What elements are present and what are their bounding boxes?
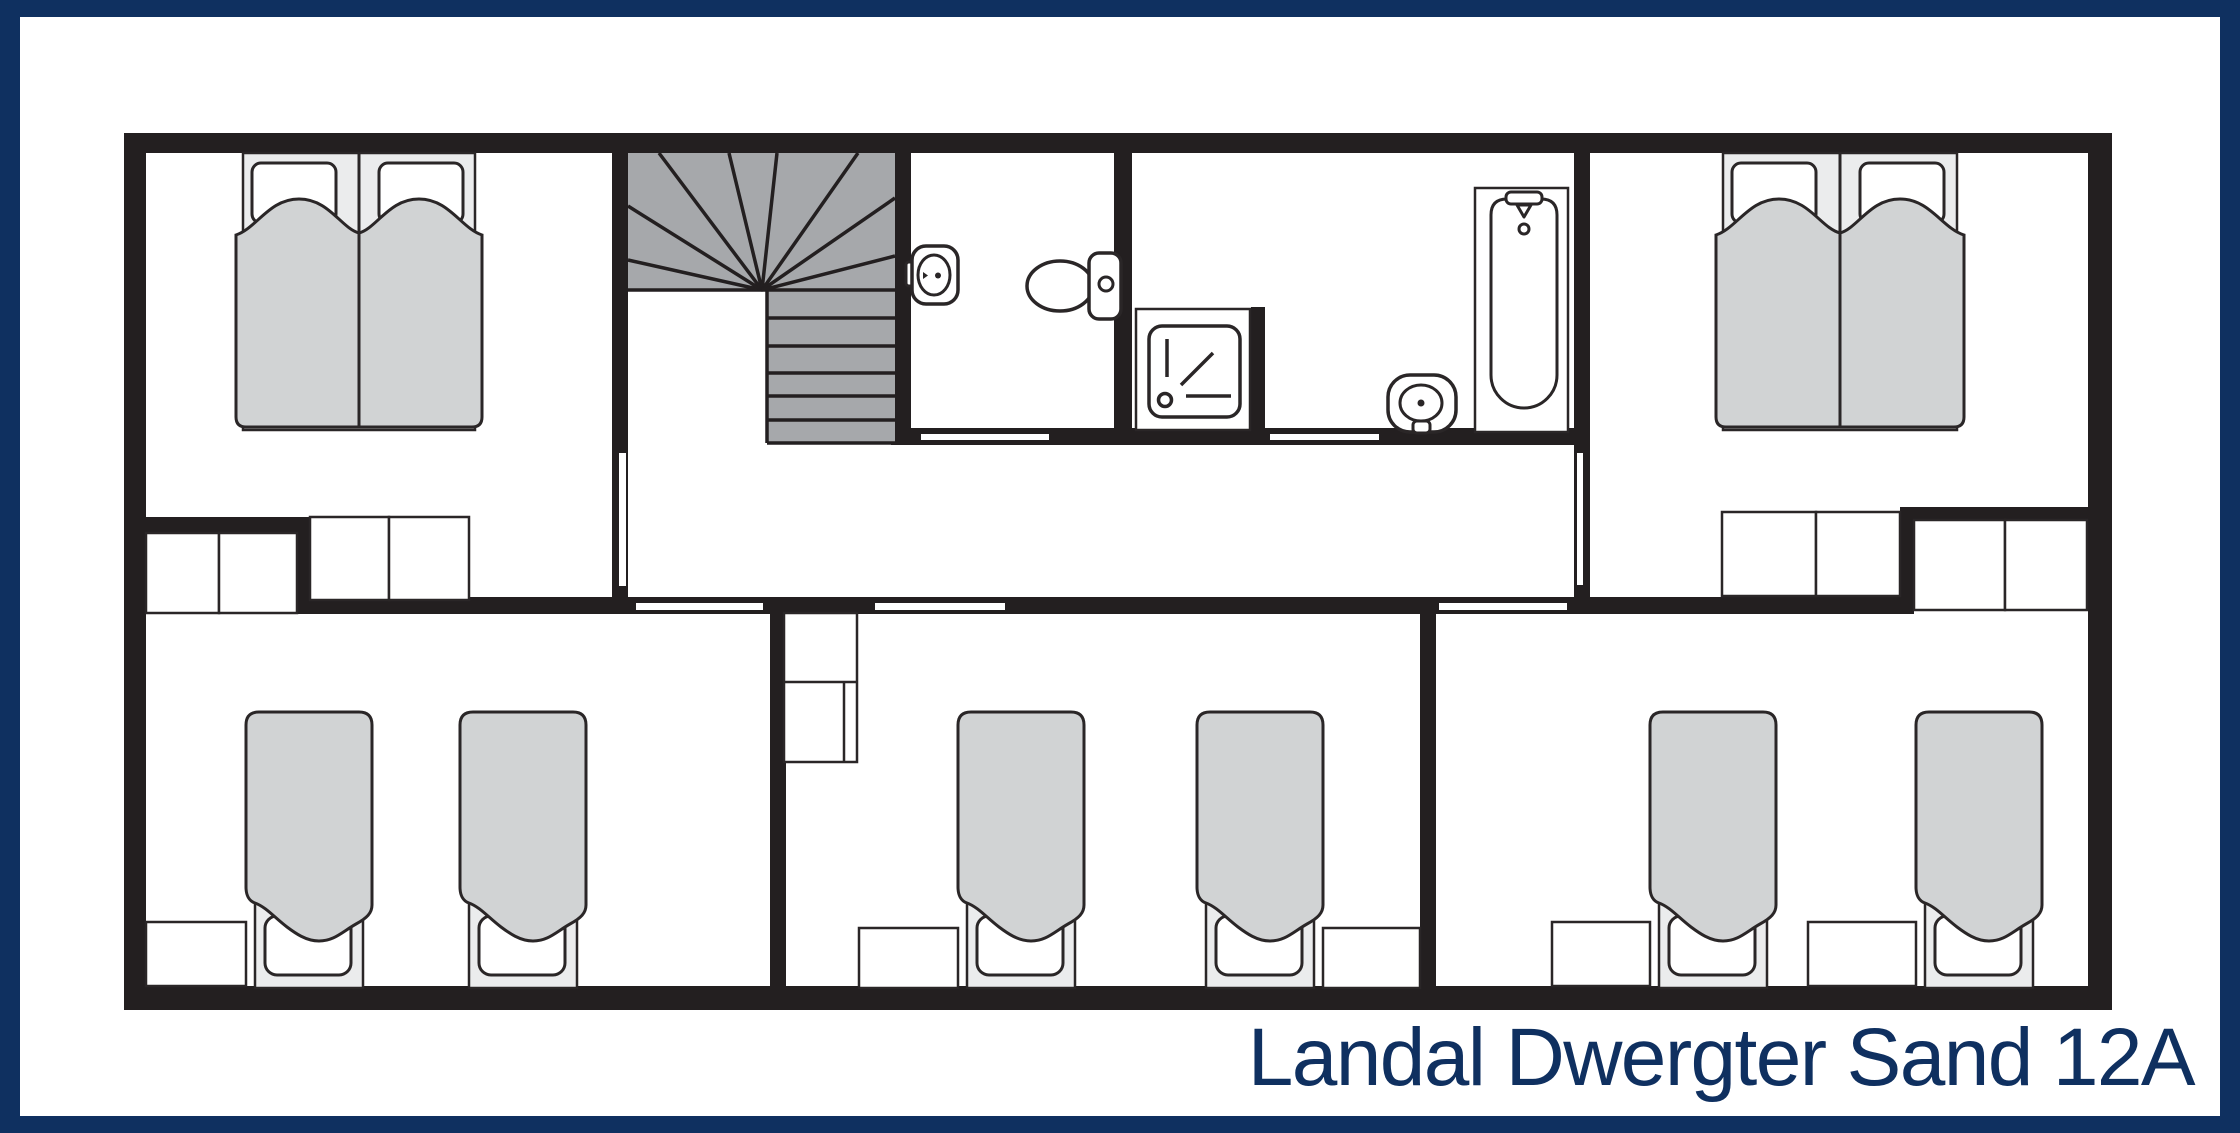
svg-text:Landal Dwergter Sand 12A: Landal Dwergter Sand 12A bbox=[1248, 1012, 2196, 1103]
